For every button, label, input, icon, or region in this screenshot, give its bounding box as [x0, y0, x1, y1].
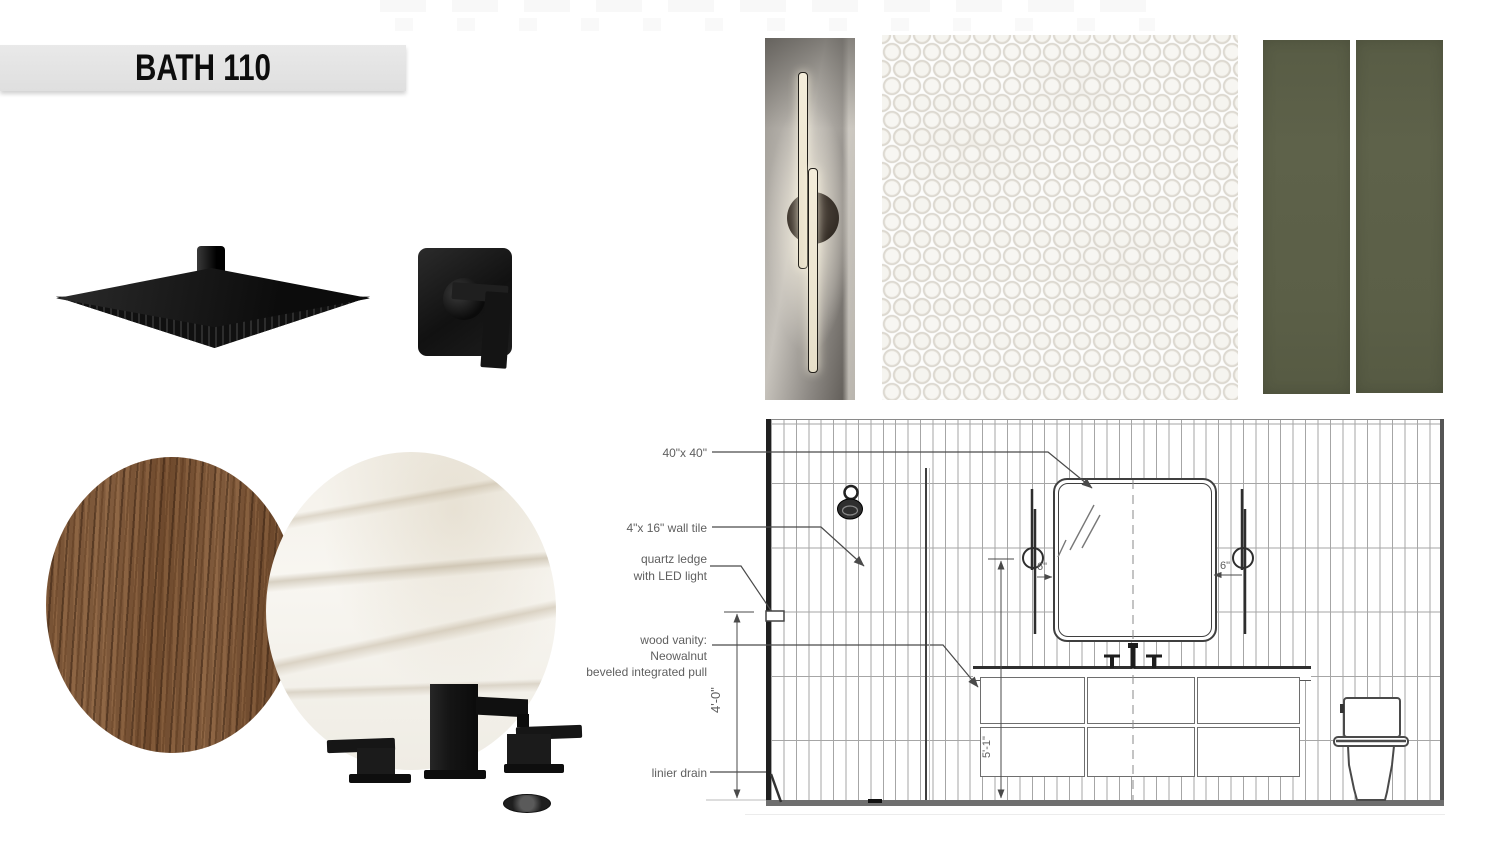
dimension-6in-right: 6"	[1220, 560, 1230, 572]
green-wall-tile-swatch	[1356, 40, 1443, 393]
vanity-drawer	[1197, 677, 1300, 724]
vanity-drawer	[980, 677, 1085, 724]
sconce-light-bar	[808, 168, 818, 373]
faucet-left-handle-base	[349, 774, 411, 783]
green-wall-tile-swatch	[1263, 40, 1350, 394]
leader-quartz-ledge	[710, 566, 772, 612]
penny-round-tile-swatch	[882, 35, 1238, 400]
dimension-4ft0in: 4'-0"	[708, 663, 723, 737]
faucet-spout	[430, 684, 478, 773]
elevation-faint-line	[745, 814, 1445, 815]
vanity-drawer	[1087, 727, 1195, 777]
cropped-top-artifact	[380, 0, 1160, 12]
elevation-right-border	[1440, 419, 1444, 806]
led-sconce-image	[765, 38, 855, 400]
faucet-spout-base	[424, 770, 486, 779]
faucet-right-handle-base	[504, 764, 564, 773]
elevation-floor-line	[766, 800, 1444, 806]
vanity-drawer	[1197, 727, 1300, 777]
faucet-spout-tip	[517, 714, 529, 727]
shower-head	[56, 268, 370, 348]
room-title-banner: BATH 110	[0, 45, 406, 91]
faucet-drain-stopper	[503, 794, 551, 813]
vanity-drawer	[1087, 677, 1195, 724]
callout-wall-tile: 4"x 16" wall tile	[560, 520, 707, 537]
elevation-left-wall	[766, 419, 771, 806]
dimension-6in-left: 6"	[1037, 561, 1047, 573]
valve-lever	[480, 291, 511, 369]
walnut-wood-swatch	[46, 457, 298, 753]
elevation-top-border	[766, 419, 1444, 420]
mirror-inner-frame	[1058, 483, 1212, 637]
cropped-top-artifact	[395, 18, 1155, 31]
sconce-light-bar	[798, 72, 808, 269]
faucet-right-handle	[507, 734, 551, 768]
elevation-vanity	[980, 677, 1298, 775]
callout-quartz-ledge: quartz ledge with LED light	[560, 551, 707, 585]
quartz-countertop-swatch	[266, 452, 556, 770]
callout-wood-vanity: wood vanity: Neowalnut beveled integrate…	[530, 632, 707, 680]
page-title: BATH 110	[135, 47, 271, 89]
dimension-5ft1in: 5'-1"	[981, 722, 993, 772]
callout-mirror-size: 40"x 40"	[560, 445, 707, 462]
callout-linear-drain: linier drain	[560, 765, 707, 782]
mood-board: BATH 110	[0, 0, 1500, 843]
elevation-mirror	[1053, 478, 1217, 642]
vanity-drawer	[980, 727, 1085, 777]
